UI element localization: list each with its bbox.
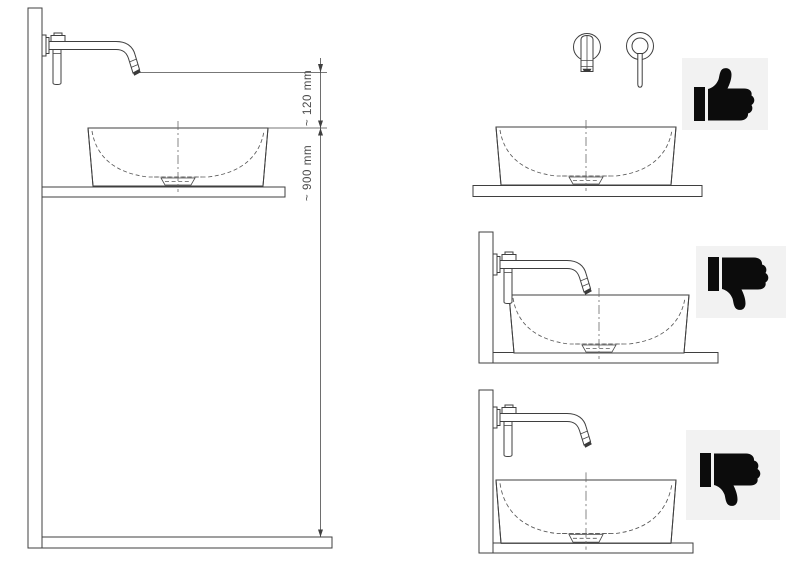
left-installation-diagram: ~ 120 mm ~ 900 mm — [28, 8, 332, 548]
arrowhead — [318, 121, 323, 129]
wall-faucet-side-view — [493, 405, 592, 457]
verdict-badge-correct — [682, 58, 768, 130]
wall-section-hatch — [479, 390, 493, 553]
wall-section-hatch — [479, 232, 493, 363]
front-view-correct-diagram — [473, 33, 768, 197]
floor-section-hatch — [42, 537, 332, 548]
spout-front-view — [574, 34, 601, 72]
side-view-basin-at-wall-diagram — [479, 390, 780, 553]
mixer-front-view — [627, 33, 654, 88]
dimension-label-spout-height: ~ 120 mm — [302, 70, 314, 126]
floor-section-hatch — [493, 543, 693, 553]
vessel-basin-front-view — [496, 120, 676, 191]
diagram-canvas: ~ 120 mm ~ 900 mm — [0, 0, 800, 567]
washbasin-installation-diagram-page: ~ 120 mm ~ 900 mm — [0, 0, 800, 567]
wall-section-hatch — [28, 8, 42, 548]
arrowhead — [318, 530, 323, 538]
vessel-basin-side-view — [496, 472, 676, 549]
side-view-faucet-too-low-diagram — [479, 232, 786, 363]
arrowhead — [318, 64, 323, 73]
verdict-badge-incorrect — [696, 246, 786, 318]
countertop-section-hatch — [473, 186, 702, 197]
wall-faucet-side-view — [42, 33, 141, 85]
vessel-basin-side-view — [509, 288, 689, 359]
arrowhead — [318, 128, 323, 136]
dimension-label-rim-height: ~ 900 mm — [302, 145, 314, 201]
verdict-badge-incorrect — [686, 430, 780, 520]
vessel-basin-side-view — [88, 121, 268, 192]
countertop-section-hatch — [42, 187, 285, 197]
floor-section-hatch — [493, 353, 718, 364]
